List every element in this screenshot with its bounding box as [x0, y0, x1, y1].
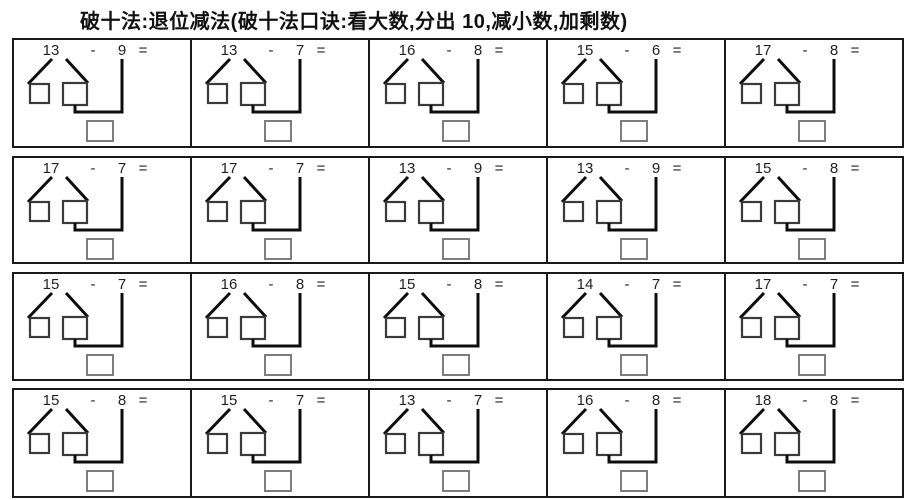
worksheet-row: 17 - 7 = 17 - 7 = 13 - 9 = — [12, 156, 904, 264]
part-box-left — [386, 202, 405, 221]
split-line-right — [600, 409, 622, 433]
answer-box — [621, 355, 647, 375]
number-bond-diagram — [726, 390, 902, 494]
part-box-left — [208, 202, 227, 221]
answer-box — [87, 471, 113, 491]
problem-cell: 15 - 8 = — [14, 390, 192, 496]
number-bond-diagram — [14, 390, 190, 494]
part-box-right — [63, 317, 87, 339]
answer-box — [87, 121, 113, 141]
split-line-right — [422, 59, 444, 83]
part-box-right — [419, 83, 443, 105]
part-box-right — [419, 433, 443, 455]
split-line-left — [384, 293, 408, 318]
problem-cell: 18 - 8 = — [726, 390, 902, 496]
problem-cell: 15 - 8 = — [726, 158, 902, 262]
split-line-left — [562, 409, 586, 434]
split-line-right — [244, 177, 266, 201]
split-line-right — [66, 409, 88, 433]
worksheet-row: 15 - 7 = 16 - 8 = 15 - 8 = — [12, 272, 904, 381]
part-box-left — [386, 318, 405, 337]
part-box-right — [63, 201, 87, 223]
part-box-right — [597, 317, 621, 339]
split-line-left — [206, 293, 230, 318]
answer-box — [799, 121, 825, 141]
answer-box — [265, 239, 291, 259]
answer-box — [799, 355, 825, 375]
part-box-right — [63, 83, 87, 105]
number-bond-diagram — [14, 274, 190, 378]
answer-box — [443, 239, 469, 259]
answer-box — [87, 355, 113, 375]
part-box-left — [742, 84, 761, 103]
problem-cell: 17 - 7 = — [14, 158, 192, 262]
part-box-left — [742, 318, 761, 337]
split-line-right — [244, 293, 266, 317]
part-box-left — [386, 84, 405, 103]
part-box-right — [63, 433, 87, 455]
split-line-right — [244, 409, 266, 433]
part-box-left — [30, 84, 49, 103]
split-line-right — [244, 59, 266, 83]
problem-cell: 16 - 8 = — [370, 40, 548, 146]
number-bond-diagram — [548, 390, 724, 494]
number-bond-diagram — [370, 390, 546, 494]
part-box-right — [775, 83, 799, 105]
problem-cell: 13 - 7 = — [370, 390, 548, 496]
number-bond-diagram — [726, 274, 902, 378]
number-bond-diagram — [14, 40, 190, 144]
split-line-right — [778, 293, 800, 317]
part-box-left — [564, 318, 583, 337]
problem-cell: 17 - 7 = — [726, 274, 902, 379]
number-bond-diagram — [192, 40, 368, 144]
worksheet-page: 破十法:退位减法(破十法口诀:看大数,分出 10,减小数,加剩数) 13 - 9… — [0, 0, 911, 500]
split-line-right — [778, 409, 800, 433]
split-line-right — [778, 177, 800, 201]
split-line-left — [28, 409, 52, 434]
answer-box — [265, 471, 291, 491]
part-box-right — [241, 201, 265, 223]
answer-box — [443, 471, 469, 491]
split-line-left — [384, 409, 408, 434]
number-bond-diagram — [548, 40, 724, 144]
number-bond-diagram — [192, 158, 368, 262]
number-bond-diagram — [370, 274, 546, 378]
split-line-right — [66, 177, 88, 201]
split-line-right — [422, 177, 444, 201]
worksheet-row: 15 - 8 = 15 - 7 = 13 - 7 = — [12, 388, 904, 498]
worksheet-row: 13 - 9 = 13 - 7 = 16 - 8 = — [12, 38, 904, 148]
number-bond-diagram — [14, 158, 190, 262]
answer-box — [621, 471, 647, 491]
answer-box — [799, 471, 825, 491]
split-line-right — [600, 177, 622, 201]
split-line-left — [740, 293, 764, 318]
number-bond-diagram — [548, 158, 724, 262]
problem-cell: 16 - 8 = — [192, 274, 370, 379]
part-box-right — [241, 433, 265, 455]
part-box-left — [30, 202, 49, 221]
problem-cell: 17 - 8 = — [726, 40, 902, 146]
answer-box — [265, 121, 291, 141]
split-line-left — [206, 59, 230, 84]
split-line-left — [562, 59, 586, 84]
part-box-right — [775, 317, 799, 339]
split-line-right — [600, 59, 622, 83]
split-line-left — [562, 177, 586, 202]
number-bond-diagram — [192, 390, 368, 494]
split-line-right — [422, 293, 444, 317]
part-box-left — [564, 84, 583, 103]
part-box-right — [775, 201, 799, 223]
problem-cell: 13 - 9 = — [14, 40, 192, 146]
number-bond-diagram — [726, 40, 902, 144]
split-line-left — [740, 409, 764, 434]
number-bond-diagram — [548, 274, 724, 378]
split-line-left — [28, 59, 52, 84]
worksheet-title: 破十法:退位减法(破十法口诀:看大数,分出 10,减小数,加剩数) — [80, 5, 628, 34]
part-box-right — [241, 83, 265, 105]
problem-cell: 13 - 9 = — [548, 158, 726, 262]
part-box-left — [742, 434, 761, 453]
answer-box — [443, 355, 469, 375]
number-bond-diagram — [370, 158, 546, 262]
number-bond-diagram — [726, 158, 902, 262]
part-box-right — [597, 201, 621, 223]
problem-cell: 17 - 7 = — [192, 158, 370, 262]
part-box-left — [386, 434, 405, 453]
part-box-left — [208, 434, 227, 453]
split-line-left — [384, 177, 408, 202]
split-line-left — [740, 59, 764, 84]
part-box-left — [30, 434, 49, 453]
answer-box — [443, 121, 469, 141]
split-line-right — [778, 59, 800, 83]
part-box-right — [241, 317, 265, 339]
number-bond-diagram — [192, 274, 368, 378]
answer-box — [265, 355, 291, 375]
split-line-right — [66, 293, 88, 317]
part-box-left — [208, 318, 227, 337]
split-line-left — [28, 177, 52, 202]
problem-cell: 13 - 9 = — [370, 158, 548, 262]
problem-cell: 13 - 7 = — [192, 40, 370, 146]
part-box-left — [30, 318, 49, 337]
answer-box — [621, 239, 647, 259]
split-line-left — [740, 177, 764, 202]
part-box-left — [564, 434, 583, 453]
problem-cell: 15 - 7 = — [192, 390, 370, 496]
problem-cell: 14 - 7 = — [548, 274, 726, 379]
problem-cell: 15 - 6 = — [548, 40, 726, 146]
split-line-left — [562, 293, 586, 318]
problem-cell: 16 - 8 = — [548, 390, 726, 496]
answer-box — [621, 121, 647, 141]
answer-box — [87, 239, 113, 259]
number-bond-diagram — [370, 40, 546, 144]
part-box-right — [597, 433, 621, 455]
split-line-left — [206, 177, 230, 202]
split-line-left — [28, 293, 52, 318]
split-line-right — [66, 59, 88, 83]
problem-cell: 15 - 8 = — [370, 274, 548, 379]
part-box-left — [742, 202, 761, 221]
part-box-right — [419, 317, 443, 339]
split-line-left — [206, 409, 230, 434]
part-box-left — [208, 84, 227, 103]
split-line-right — [600, 293, 622, 317]
split-line-right — [422, 409, 444, 433]
part-box-right — [775, 433, 799, 455]
part-box-right — [597, 83, 621, 105]
part-box-right — [419, 201, 443, 223]
answer-box — [799, 239, 825, 259]
split-line-left — [384, 59, 408, 84]
problem-cell: 15 - 7 = — [14, 274, 192, 379]
part-box-left — [564, 202, 583, 221]
